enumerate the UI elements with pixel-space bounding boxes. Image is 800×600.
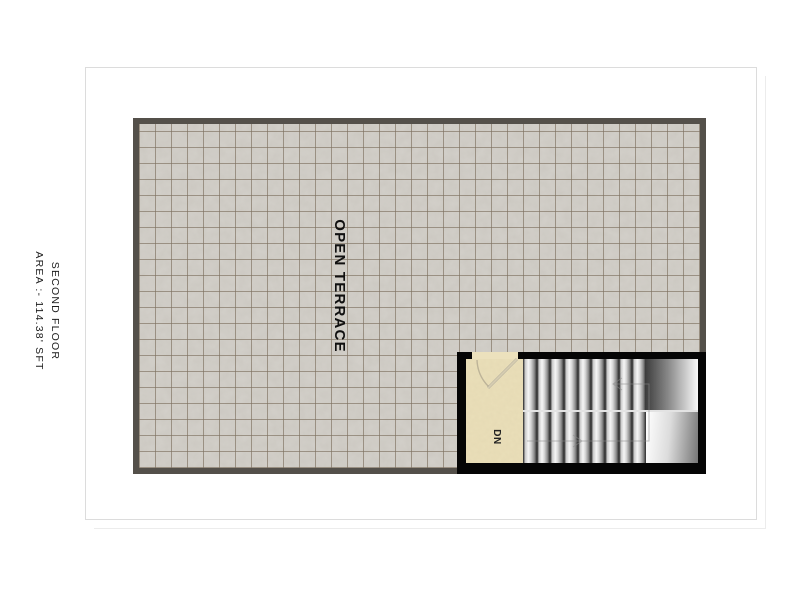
stair-flights	[523, 359, 698, 463]
floor-area-label: AREA :- 114.38' SFT	[31, 251, 47, 370]
room-label-text: OPEN TERRACE	[332, 219, 349, 353]
floor-title: SECOND FLOOR	[47, 262, 63, 360]
stair-tread	[578, 412, 592, 463]
door-opening	[472, 352, 518, 359]
stair-tread	[523, 359, 537, 410]
floor-title-block: SECOND FLOOR AREA :- 114.38' SFT	[30, 226, 64, 396]
tread-group	[523, 412, 646, 463]
stair-tread	[537, 359, 551, 410]
stair-tread	[632, 412, 646, 463]
stair-tread	[523, 412, 537, 463]
stair-tread	[619, 412, 633, 463]
room-label-open-terrace: OPEN TERRACE	[329, 216, 351, 356]
stair-tread	[605, 412, 619, 463]
stair-upper-landing-block	[646, 359, 698, 410]
stair-tread	[591, 359, 605, 410]
stair-tread	[564, 412, 578, 463]
stair-flight-upper	[523, 359, 698, 410]
stair-tread	[578, 359, 592, 410]
dn-text: DN	[492, 429, 503, 444]
stair-tread	[550, 412, 564, 463]
stair-tread	[564, 359, 578, 410]
staircase-enclosure	[457, 352, 706, 474]
stair-tread	[550, 359, 564, 410]
stair-tread	[591, 412, 605, 463]
stair-tread	[605, 359, 619, 410]
tread-group	[523, 359, 646, 410]
stair-tread	[632, 359, 646, 410]
floor-plan-page: SECOND FLOOR AREA :- 114.38' SFT OPEN TE…	[0, 0, 800, 600]
stair-direction-label: DN	[489, 422, 505, 452]
stair-tread	[537, 412, 551, 463]
stair-tread	[619, 359, 633, 410]
stair-lower-landing-block	[646, 412, 698, 463]
stair-flight-lower	[523, 412, 698, 463]
